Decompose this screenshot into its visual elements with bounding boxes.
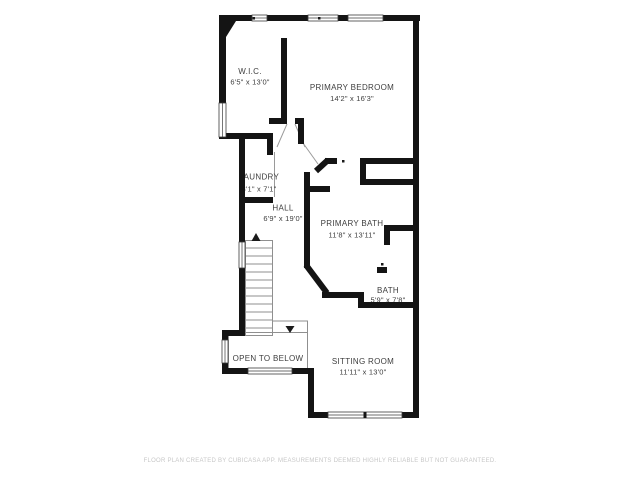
- window-mullion: [364, 412, 367, 418]
- frame-tick: [253, 17, 256, 20]
- chamfered-corner: [219, 15, 241, 37]
- window: [219, 103, 226, 137]
- stairs: [246, 241, 273, 336]
- window: [348, 15, 383, 21]
- room-dims-primary-bath: 11'8" x 13'11": [329, 231, 376, 240]
- room-label-primary-bath: PRIMARY BATH: [321, 219, 384, 228]
- window: [328, 412, 402, 418]
- room-label-primary-bedroom: PRIMARY BEDROOM: [310, 83, 394, 92]
- room-label-sitting-room: SITTING ROOM: [332, 357, 394, 366]
- window: [308, 15, 338, 21]
- footer-disclaimer: FLOOR PLAN CREATED BY CUBICASA APP. MEAS…: [144, 458, 497, 464]
- room-label-bath: BATH: [377, 286, 399, 295]
- window: [222, 340, 228, 363]
- room-label-wic: W.I.C.: [238, 67, 262, 76]
- window: [239, 242, 245, 268]
- frame-tick: [381, 263, 384, 266]
- frame-tick: [318, 17, 321, 20]
- room-dims-primary-bedroom: 14'2" x 16'3": [330, 94, 374, 103]
- room-dims-hall: 6'9" x 19'0": [263, 214, 302, 223]
- window: [248, 368, 292, 374]
- room-labels: W.I.C. 6'5" x 13'0" PRIMARY BEDROOM 14'2…: [230, 67, 405, 377]
- stairs-up-arrow-icon: [252, 233, 261, 241]
- room-label-hall: HALL: [272, 204, 293, 213]
- stairs-down-arrow-icon: [286, 326, 295, 333]
- room-dims-wic: 6'5" x 13'0": [230, 78, 269, 87]
- room-dims-laundry: 3'1" x 7'1": [242, 185, 277, 194]
- room-dims-sitting-room: 11'11" x 13'0": [340, 368, 387, 377]
- frame-tick: [342, 160, 345, 163]
- room-label-open-to-below: OPEN TO BELOW: [233, 354, 304, 363]
- floor-plan-canvas: W.I.C. 6'5" x 13'0" PRIMARY BEDROOM 14'2…: [0, 0, 640, 480]
